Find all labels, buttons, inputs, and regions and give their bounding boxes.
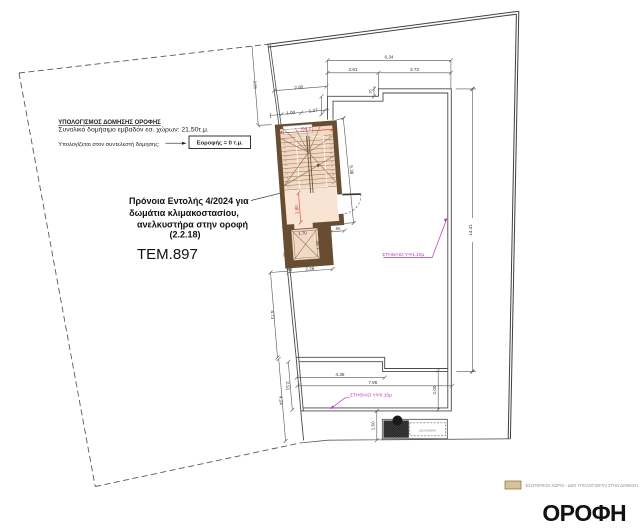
svg-text:35: 35 [369,89,373,93]
svg-text:ανελκυστήρα στην οροφή: ανελκυστήρα στην οροφή [137,220,248,230]
svg-text:Θ6.2: Θ6.2 [301,126,312,132]
svg-text:ΣΤΗΘΑΙΟ ΥΨ0.10μ: ΣΤΗΘΑΙΟ ΥΨ0.10μ [350,392,392,398]
svg-text:3.73: 3.73 [410,67,419,72]
svg-text:3.85: 3.85 [252,81,258,90]
svg-text:.85: .85 [334,226,341,231]
svg-text:4.73: 4.73 [270,310,276,320]
svg-text:1.80: 1.80 [315,240,321,249]
svg-text:ΟΡΟΦΗ: ΟΡΟΦΗ [542,500,626,526]
svg-text:.40: .40 [282,252,286,257]
svg-text:4.24: 4.24 [278,396,284,406]
svg-text:4.38: 4.38 [336,372,345,377]
svg-text:Εοροφής = 0 τ.μ.: Εοροφής = 0 τ.μ. [197,140,243,146]
svg-text:ΤΕΜ.897: ΤΕΜ.897 [137,246,198,263]
svg-text:(2.2.18): (2.2.18) [169,229,200,239]
svg-text:2.51: 2.51 [285,381,290,391]
svg-text:1.80: 1.80 [294,205,300,215]
svg-text:2.80: 2.80 [294,84,304,90]
svg-text:1.50: 1.50 [370,421,375,430]
svg-text:ΔΕΞΑΜΕΝΗ: ΔΕΞΑΜΕΝΗ [419,428,436,432]
svg-text:5.38: 5.38 [349,165,355,175]
svg-text:6.34: 6.34 [385,55,394,60]
svg-text:7.95: 7.95 [368,380,377,385]
svg-text:2.26: 2.26 [305,266,315,272]
svg-text:2.61: 2.61 [349,67,358,72]
svg-text:2.00: 2.00 [432,385,437,394]
svg-text:δωμάτια κλιμακοστασίου,: δωμάτια κλιμακοστασίου, [129,208,239,218]
svg-text:ΥΠΟΛΟΓΙΣΜΟΣ ΔΟΜΗΣΗΣ ΟΡΟΦΗΣ: ΥΠΟΛΟΓΙΣΜΟΣ ΔΟΜΗΣΗΣ ΟΡΟΦΗΣ [58,120,161,126]
svg-text:14.41: 14.41 [468,224,473,236]
svg-text:Πρόνοια Εντολής 4/2024 για: Πρόνοια Εντολής 4/2024 για [129,196,249,206]
svg-text:1.00: 1.00 [286,110,296,116]
svg-text:ΕΣΩΤΕΡΙΚΟΙ ΧΩΡΟΙ - ΔΕΝ ΥΠΟΛΟΓΙ: ΕΣΩΤΕΡΙΚΟΙ ΧΩΡΟΙ - ΔΕΝ ΥΠΟΛΟΓΙΖΕΤΑΙ ΣΤΗΝ… [526,483,639,488]
svg-text:Υπολογίζεται στον συντελεστή δ: Υπολογίζεται στον συντελεστή δόμησης: [58,141,160,148]
svg-text:1.37: 1.37 [308,108,318,114]
svg-text:1.70: 1.70 [298,230,307,236]
svg-text:Συνολικό δομήσιμο εμβαδόν εσ.: Συνολικό δομήσιμο εμβαδόν εσ. χώρων: 21,… [58,126,209,134]
